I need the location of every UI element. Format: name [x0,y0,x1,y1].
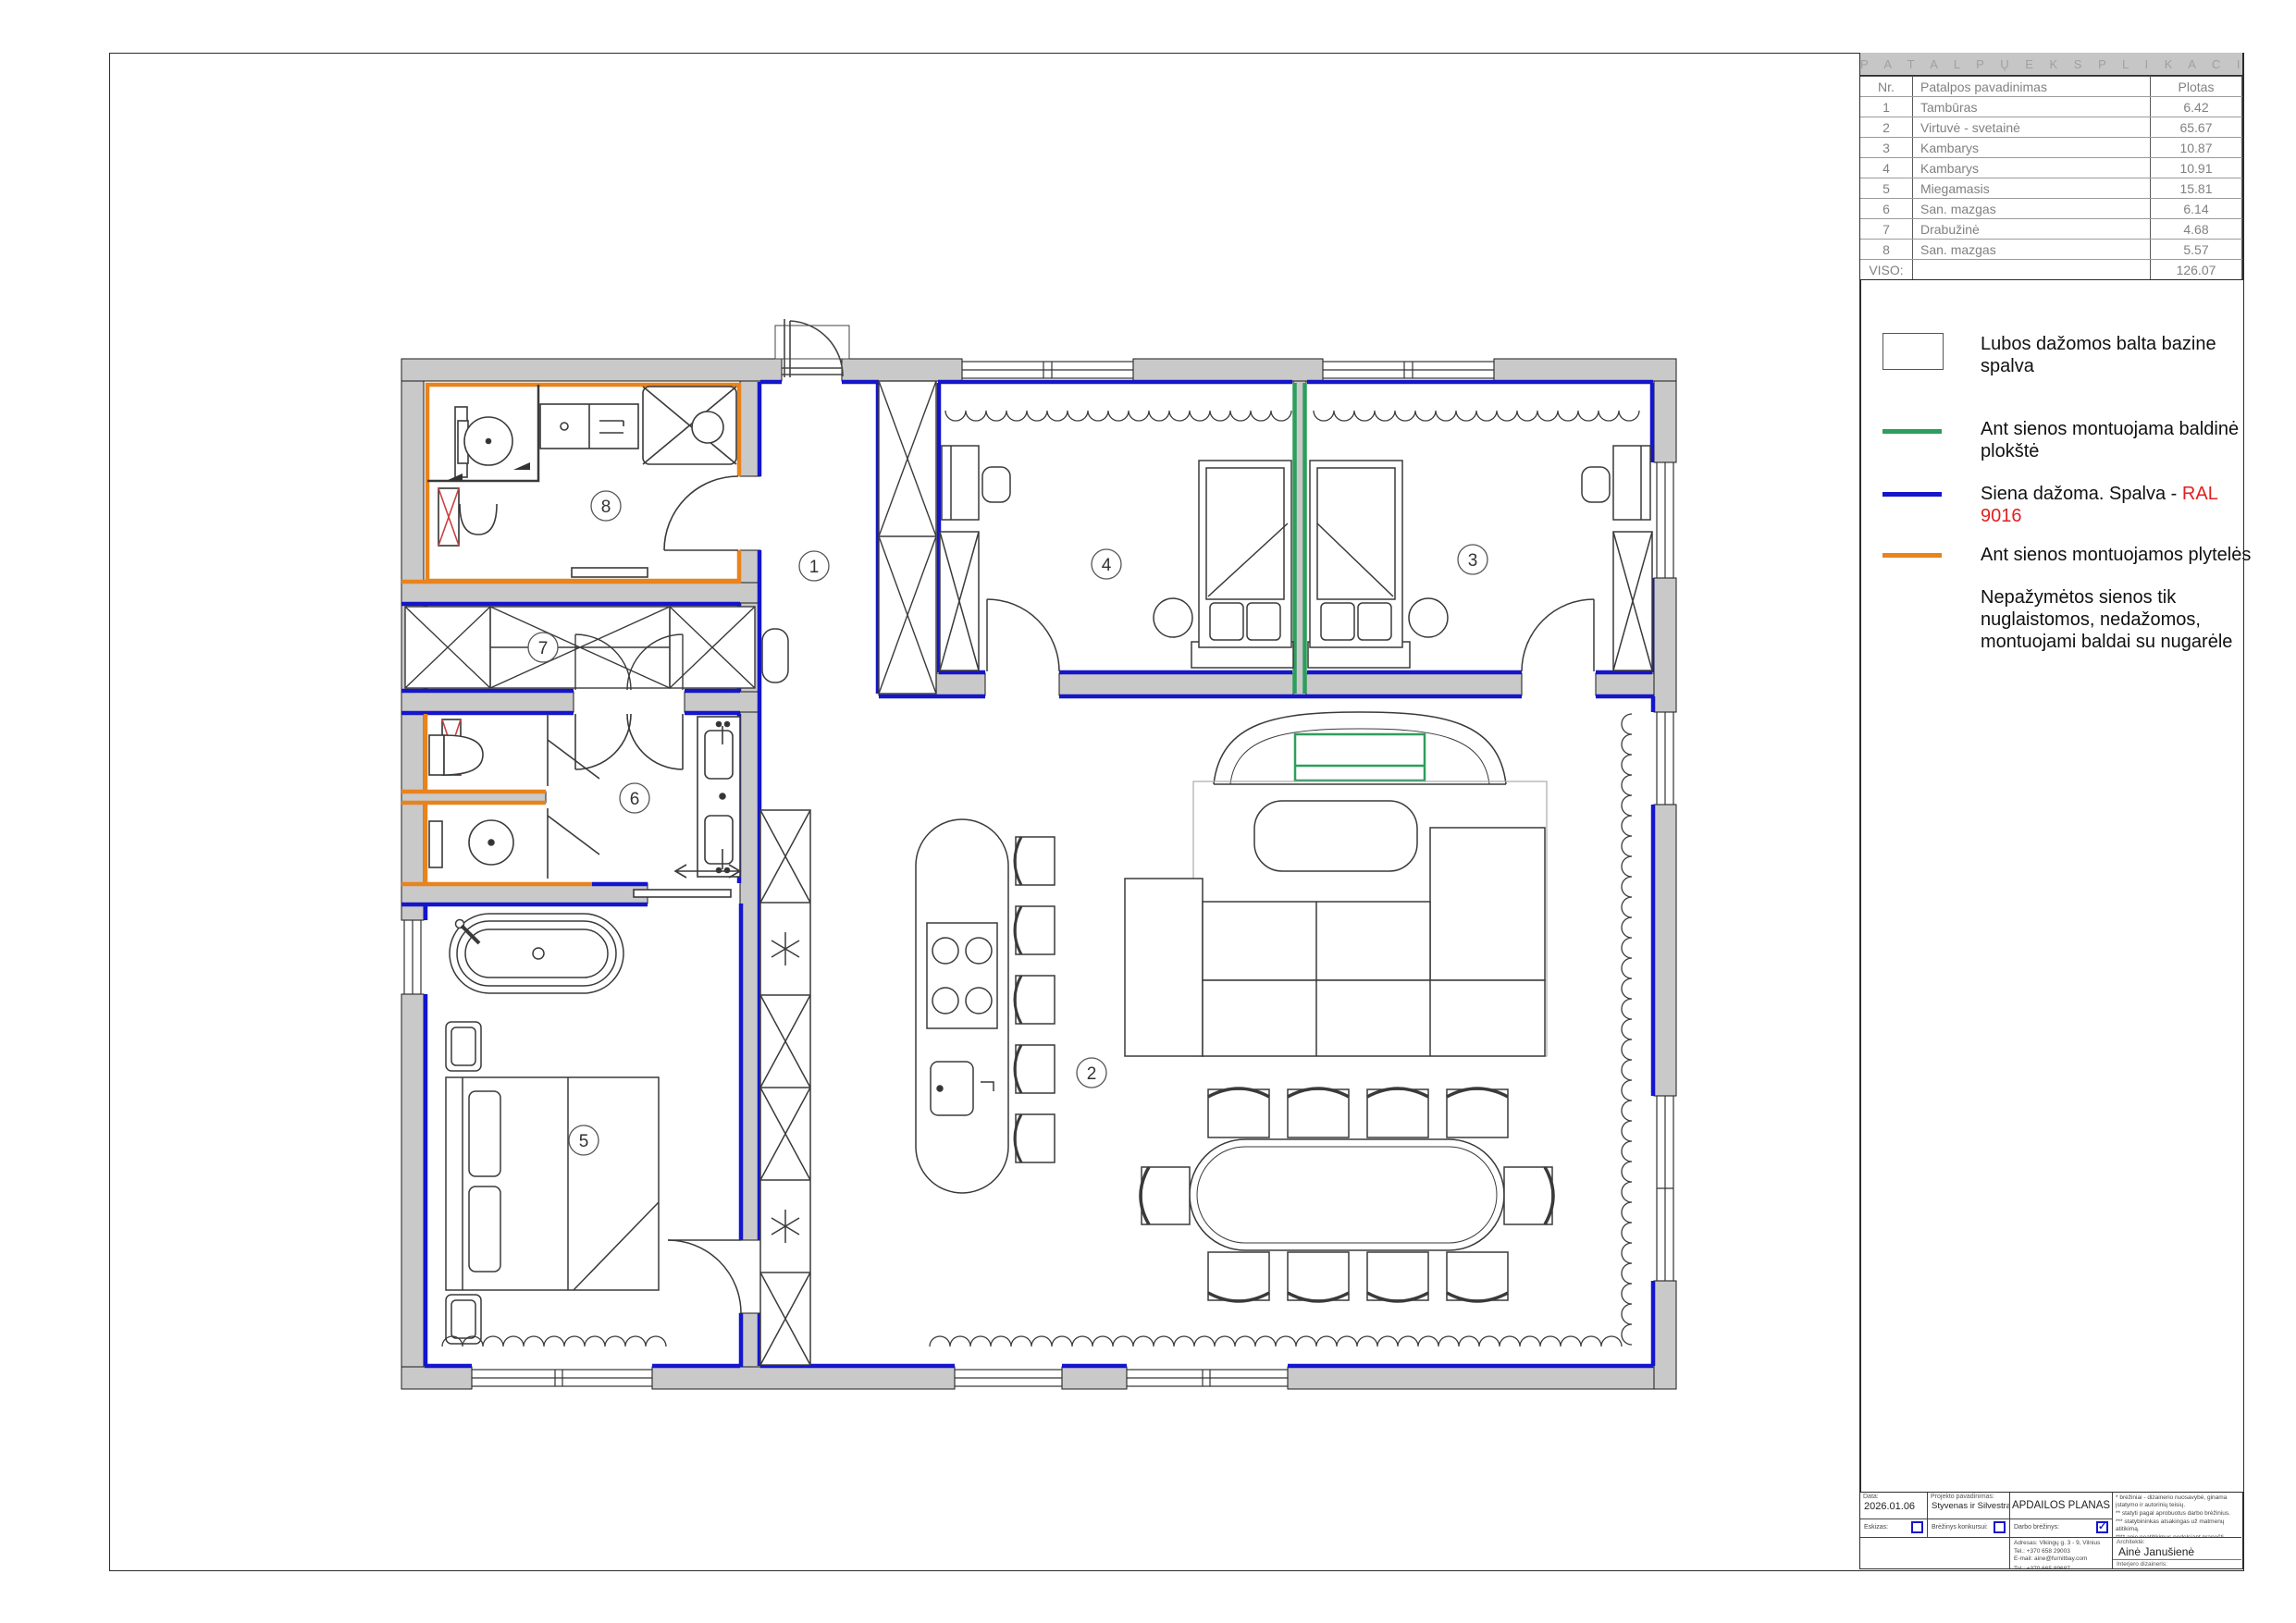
room-explication-table: P A T A L P Ų E K S P L I K A C I J A Nr… [1859,53,2243,280]
table-row: 5Miegamasis15.81 [1860,178,2242,199]
architect-label: Architektė: [2113,1538,2241,1545]
col-header-nr: Nr. [1860,77,1913,97]
table-total-row: VISO: 126.07 [1860,260,2242,280]
room-marker-3: 3 [1468,551,1478,571]
date-label: Data: [1860,1493,1927,1500]
contact-info-2: Tel.: +370 665 89687 E-mail: projektavim… [2010,1566,2112,1569]
floor-plan: 1 2 3 4 5 6 7 8 [389,296,1702,1406]
architect-name: Ainė Janušienė [2113,1545,2241,1560]
table-row: 7Drabužinė4.68 [1860,219,2242,240]
green-line-swatch [1882,429,1942,434]
panel-divider [1859,53,1861,1569]
room-marker-2: 2 [1087,1064,1097,1084]
designer-label: Interjero dizaineris: [2113,1560,2241,1568]
explication-title: P A T A L P Ų E K S P L I K A C I J A [1860,53,2242,76]
table-row: 3Kambarys10.87 [1860,138,2242,158]
drawing-title: APDAILOS PLANAS [2010,1493,2112,1518]
room-marker-1: 1 [809,558,820,577]
check-label-working: Darbo brėžinys: [2014,1524,2059,1531]
check-label-sketch: Eskizas: [1864,1524,1888,1531]
table-row: 1Tambūras6.42 [1860,97,2242,117]
room6-fixtures [429,714,740,897]
white-box-swatch [1882,333,1944,370]
room-marker-4: 4 [1102,556,1112,575]
total-value: 126.07 [2151,260,2242,280]
room-marker-7: 7 [538,639,549,658]
room-marker-5: 5 [579,1132,589,1151]
blue-line-swatch [1882,492,1942,497]
table-row: 4Kambarys10.91 [1860,158,2242,178]
contact-info-1: Adresas: Vikingų g. 3 - 9, Vilnius Tel.:… [2010,1538,2112,1566]
designer-name: Faustas Jonas Povilaitis [2113,1568,2241,1568]
table-row: 8San. mazgas5.57 [1860,240,2242,260]
room-marker-6: 6 [630,790,640,809]
title-block: Data: 2026.01.06 Projekto pavadinimas: S… [1859,1492,2243,1569]
room7-wardrobes [405,607,755,690]
project-name: Styvenas ir Silvestras [1928,1500,2009,1512]
entrance-door [775,319,849,377]
project-label: Projekto pavadinimas: [1928,1493,2009,1500]
table-header-row: Nr. Patalpos pavadinimas Plotas [1860,77,2242,97]
title-block-notes: * brėžiniai - dizainerio nuosavybė, gina… [2113,1493,2241,1538]
room-marker-8: 8 [601,498,611,517]
checkbox-competition [1994,1521,2006,1533]
orange-line-swatch [1882,553,1942,558]
drawing-sheet: 1 2 3 4 5 6 7 8 P A T A L P Ų E K S P L … [0,0,2296,1623]
checkbox-working-drawing: ✓ [2096,1521,2108,1533]
col-header-name: Patalpos pavadinimas [1913,77,2151,97]
date-value: 2026.01.06 [1860,1500,1927,1513]
check-label-competition: Brėžinys konkursui: [1932,1524,1988,1531]
table-row: 2Virtuvė - svetainė65.67 [1860,117,2242,138]
hall-closet [879,381,936,694]
table-row: 6San. mazgas6.14 [1860,199,2242,219]
col-header-area: Plotas [2151,77,2242,97]
checkbox-sketch [1911,1521,1923,1533]
hall-radiator [762,629,788,682]
total-label: VISO: [1860,260,1913,280]
room8-fixtures [427,385,738,577]
